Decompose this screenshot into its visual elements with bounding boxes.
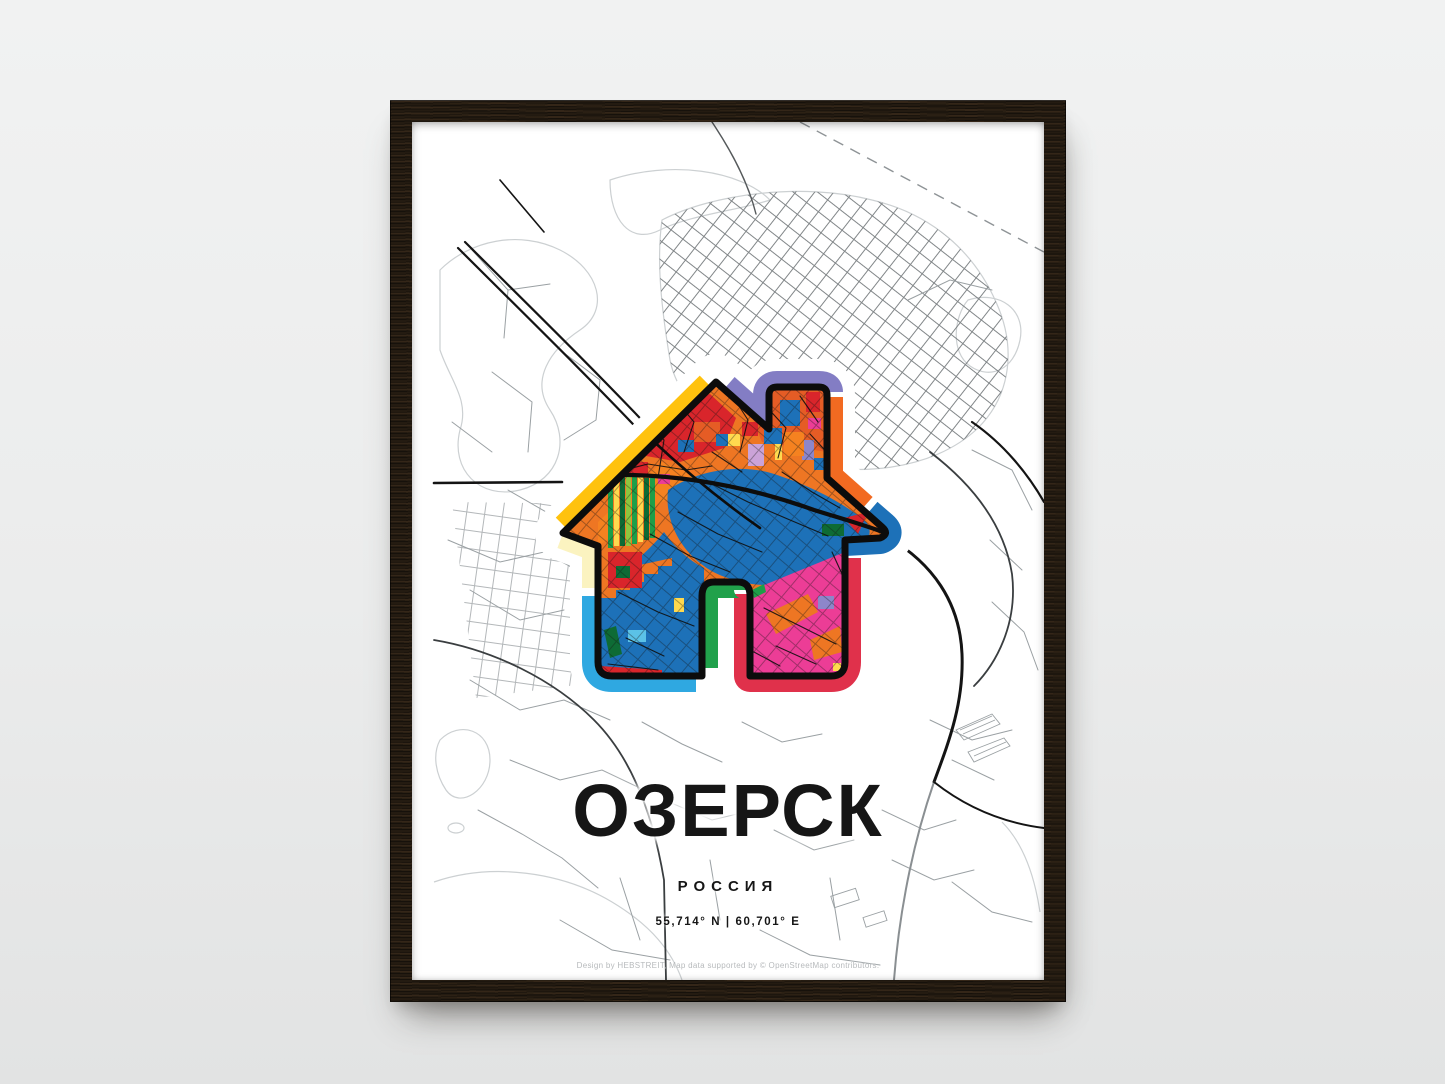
poster-frame: ОЗЕРСК РОССИЯ 55,714° N | 60,701° E Desi… [390,100,1066,1002]
map-poster: ОЗЕРСК РОССИЯ 55,714° N | 60,701° E Desi… [412,122,1044,980]
coordinates-line: 55,714° N | 60,701° E [412,917,1044,929]
home-icon [552,372,897,687]
country-subtitle: РОССИЯ [412,879,1044,894]
credit-line: Design by HEBSTREIT, Map data supported … [412,962,1044,970]
photo-scene: ОЗЕРСК РОССИЯ 55,714° N | 60,701° E Desi… [0,0,1445,1084]
city-title: ОЗЕРСК [412,774,1044,848]
